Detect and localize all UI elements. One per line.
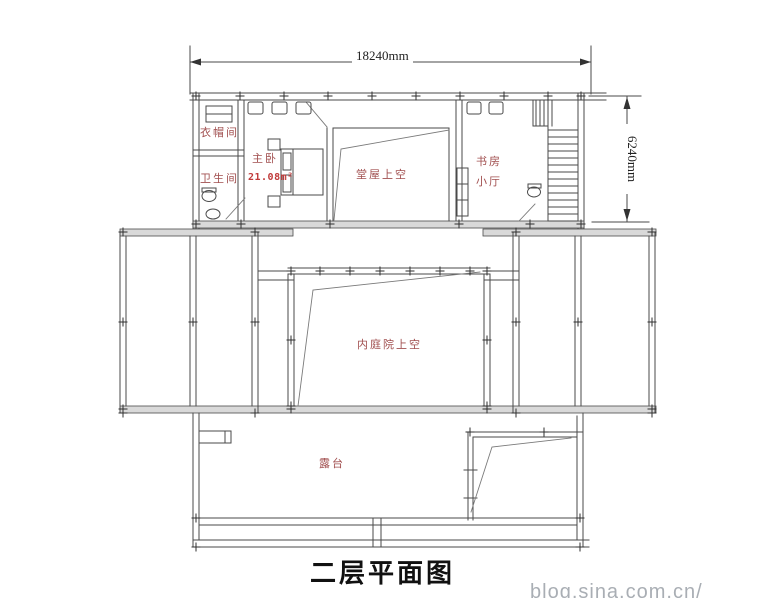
door-swing-line <box>306 102 327 127</box>
chair <box>467 102 481 114</box>
chair <box>296 102 311 114</box>
door-swing-line <box>519 204 535 221</box>
south-wall-band <box>193 221 584 228</box>
label-terrace: 露台 <box>319 455 345 471</box>
label-courtyard-void: 内庭院上空 <box>357 336 422 352</box>
chair <box>272 102 287 114</box>
drawing-title: 二层平面图 <box>310 553 455 590</box>
chair <box>248 102 263 114</box>
side-wings <box>120 229 656 413</box>
column-ticks <box>119 92 656 551</box>
label-study: 书房 <box>476 153 502 169</box>
arrow-right-icon <box>580 59 591 66</box>
floor-plan-drawing <box>0 0 764 598</box>
bathroom-fixtures <box>202 188 245 219</box>
hall-void-outline <box>306 102 449 221</box>
dimension-right <box>589 96 649 222</box>
chair <box>489 102 503 114</box>
watermark-text: blog.sina.com.cn/ <box>530 581 703 598</box>
door-swing-line <box>226 198 245 219</box>
label-cloakroom: 衣帽间 <box>200 124 239 140</box>
pillow <box>283 153 291 170</box>
staircase <box>533 100 578 221</box>
label-small-hall: 小厅 <box>476 173 502 189</box>
dimension-right-label: 6240mm <box>625 124 639 194</box>
nightstand <box>268 196 280 207</box>
label-master-bedroom: 主卧 <box>252 150 278 166</box>
arrow-up-icon <box>624 97 631 109</box>
nightstand <box>268 139 280 150</box>
label-master-bedroom-area: 21.08m² <box>248 172 294 183</box>
arrow-left-icon <box>190 59 201 66</box>
arrow-down-icon <box>624 209 631 221</box>
floor-plan-canvas: 18240mm 6240mm 衣帽间 卫生间 主卧 21.08m² 堂屋上空 书… <box>0 0 764 598</box>
label-hall-void: 堂屋上空 <box>356 166 408 182</box>
label-bathroom: 卫生间 <box>200 170 239 186</box>
furniture-top-row <box>206 102 311 122</box>
sink <box>206 209 220 219</box>
terrace <box>193 413 589 547</box>
dimension-top-label: 18240mm <box>352 49 413 63</box>
